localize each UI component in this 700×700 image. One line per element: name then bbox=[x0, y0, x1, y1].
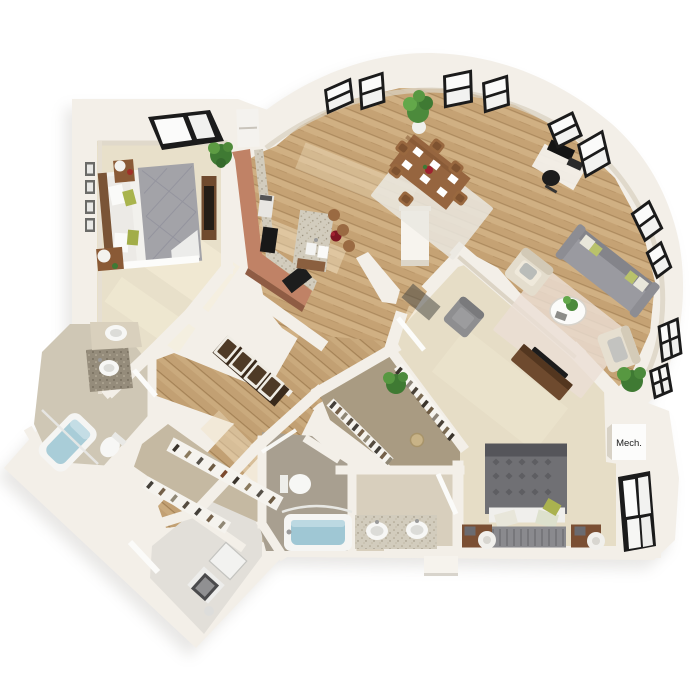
svg-text:Mech.: Mech. bbox=[616, 438, 642, 449]
